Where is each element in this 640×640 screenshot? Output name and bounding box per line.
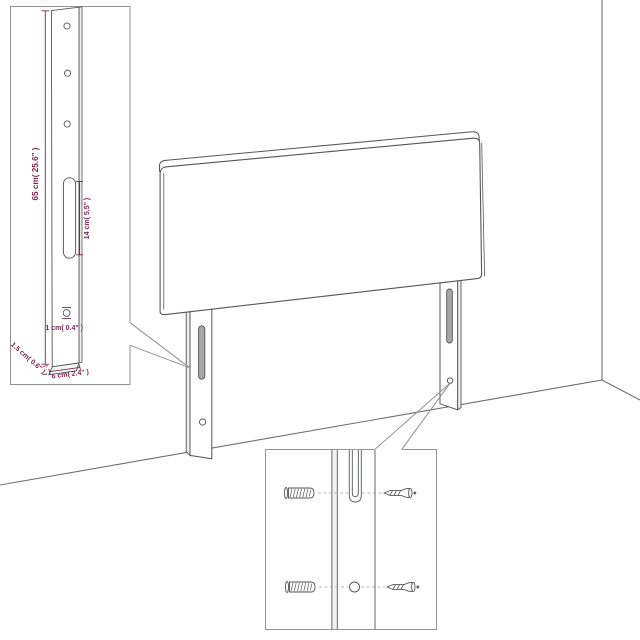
leg-side-face-strip bbox=[332, 450, 337, 629]
left-leg-callout bbox=[130, 323, 190, 368]
leg-hole-middle bbox=[65, 70, 71, 76]
leg-detail-inset: 65 cm( 25.6" ) 14 cm( 5.5" ) 1 cm( 0.4" … bbox=[9, 7, 130, 385]
headboard-right-edge-line bbox=[482, 143, 485, 277]
hole-detail bbox=[350, 582, 360, 592]
wall-plug-icon bbox=[286, 581, 316, 592]
right-leg-slot bbox=[447, 289, 453, 343]
floor-line-right bbox=[602, 380, 640, 400]
callout-line-lower bbox=[130, 345, 190, 368]
leg-hole-top bbox=[64, 23, 70, 29]
diagram-canvas: 65 cm( 25.6" ) 14 cm( 5.5" ) 1 cm( 0.4" … bbox=[0, 0, 640, 640]
slot-outer-outline bbox=[349, 450, 361, 502]
hole-diameter-dim-label: 1 cm( 0.4" ) bbox=[45, 325, 83, 332]
height-dim-label: 65 cm( 25.6" ) bbox=[31, 147, 40, 200]
right-leg-side-face bbox=[458, 272, 461, 410]
slot-length-dim-label: 14 cm( 5.5" ) bbox=[84, 198, 91, 239]
left-leg-side-face bbox=[186, 305, 190, 455]
callout-line-upper bbox=[130, 323, 190, 368]
wall-plug-icon bbox=[285, 487, 315, 498]
headboard-front-face bbox=[160, 138, 482, 314]
leg-bottom-hole bbox=[63, 310, 70, 317]
callout-line-left bbox=[375, 383, 450, 449]
right-leg-hole bbox=[447, 378, 452, 383]
headboard-right-leg bbox=[440, 268, 461, 410]
screw-detail-callout bbox=[375, 383, 450, 449]
callout-line-right bbox=[402, 383, 450, 449]
headboard-panel bbox=[159, 132, 484, 315]
left-leg-hole bbox=[200, 419, 206, 425]
screw-detail-inset bbox=[266, 450, 437, 630]
headboard-left-leg bbox=[186, 300, 212, 459]
left-leg-slot bbox=[199, 326, 205, 379]
leg-slot-outline bbox=[63, 178, 75, 258]
leg-hole-lower bbox=[64, 121, 70, 127]
product-diagram: 65 cm( 25.6" ) 14 cm( 5.5" ) 1 cm( 0.4" … bbox=[0, 0, 640, 640]
